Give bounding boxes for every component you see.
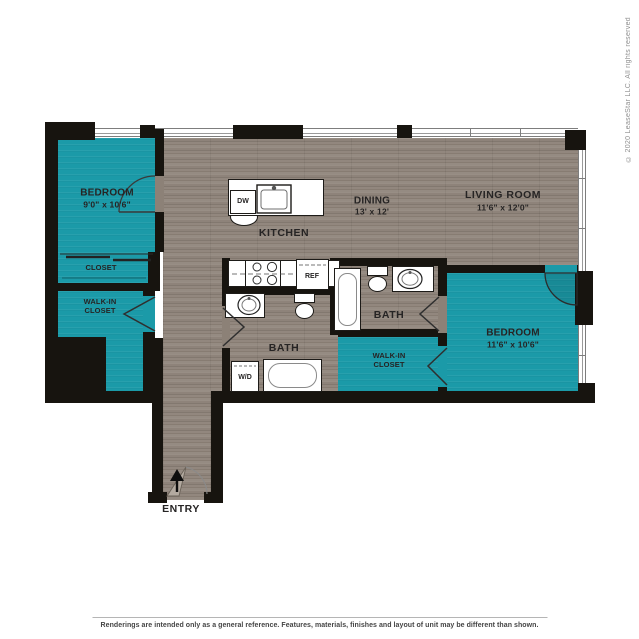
door-opening-bath2	[438, 296, 447, 333]
living-room-label: LIVING ROOM	[465, 190, 541, 202]
door-opening-bedroom2	[545, 265, 577, 273]
wall-right-mid-block	[575, 271, 593, 325]
bath2-tub-basin	[338, 273, 357, 326]
wall-top-corner-right	[565, 130, 586, 150]
dishwasher-label: DW	[237, 198, 249, 206]
door-opening-walkin1	[143, 296, 155, 332]
bath2-toilet-bowl	[368, 276, 387, 292]
bath1-toilet-bowl	[295, 303, 314, 319]
wall-corner-block	[48, 337, 106, 393]
bath2-toilet-tank	[367, 266, 388, 276]
closet1-label: CLOSET	[85, 264, 116, 272]
bath2-vanity	[392, 266, 434, 292]
window-band-right	[578, 146, 586, 391]
floor-entry-corridor	[163, 391, 211, 500]
wall-hall-right	[211, 391, 223, 500]
dining-dimensions: 13' x 12'	[355, 207, 389, 216]
bedroom1-dimensions: 9'0" x 10'6"	[83, 200, 131, 209]
wall-top-segment	[140, 125, 155, 138]
wall-top-segment	[397, 125, 412, 138]
wall-right-bottom-block	[578, 383, 595, 403]
dining-label: DINING	[354, 196, 390, 207]
walkin1-label-line2: CLOSET	[84, 307, 115, 315]
wall-bottom-main	[220, 391, 595, 403]
wall-top-segment	[233, 125, 303, 139]
bedroom1-label: BEDROOM	[80, 188, 134, 199]
refrigerator-label: REF	[305, 273, 319, 281]
window-mullion	[520, 129, 521, 136]
washer-dryer-label: W/D	[238, 374, 252, 382]
walkin1-label-line1: WALK-IN	[84, 298, 117, 306]
footer-disclaimer: Renderings are intended only as a genera…	[92, 617, 547, 629]
window-mullion	[579, 178, 585, 179]
window-mullion	[579, 228, 585, 229]
walkin2-label-line2: CLOSET	[373, 361, 404, 369]
wall-closet1-bottom	[55, 283, 150, 291]
entry-label: ENTRY	[162, 504, 200, 516]
bath1-label: BATH	[269, 343, 299, 355]
wall-entry-stub-right	[204, 492, 223, 503]
floor-plan-canvas: BEDROOM 9'0" x 10'6" CLOSET WALK-IN CLOS…	[0, 0, 639, 639]
bath1-toilet-tank	[294, 293, 315, 303]
door-opening-bedroom1	[155, 176, 164, 212]
window-mullion	[470, 129, 471, 136]
kitchen-label: KITCHEN	[259, 228, 309, 240]
bath1-vanity	[225, 293, 265, 318]
wall-hall-left	[152, 338, 163, 500]
bath1-tub-basin	[268, 363, 317, 388]
window-mullion	[579, 355, 585, 356]
wall-bath2-top	[330, 258, 447, 266]
door-opening-walkin2	[438, 346, 447, 387]
window-band-top	[58, 128, 578, 137]
walkin2-label-line1: WALK-IN	[373, 352, 406, 360]
living-room-dimensions: 11'6" x 12'0"	[477, 203, 529, 212]
wall-entry-stub-left	[148, 492, 167, 503]
stove	[245, 260, 281, 287]
bedroom2-label: BEDROOM	[486, 328, 540, 339]
bath2-label: BATH	[374, 310, 404, 322]
window-glass-line	[58, 133, 578, 134]
copyright-text: © 2020 LeaseStar LLC. All rights reserve…	[625, 12, 632, 162]
bedroom2-dimensions: 11'6" x 10'6"	[487, 340, 539, 349]
